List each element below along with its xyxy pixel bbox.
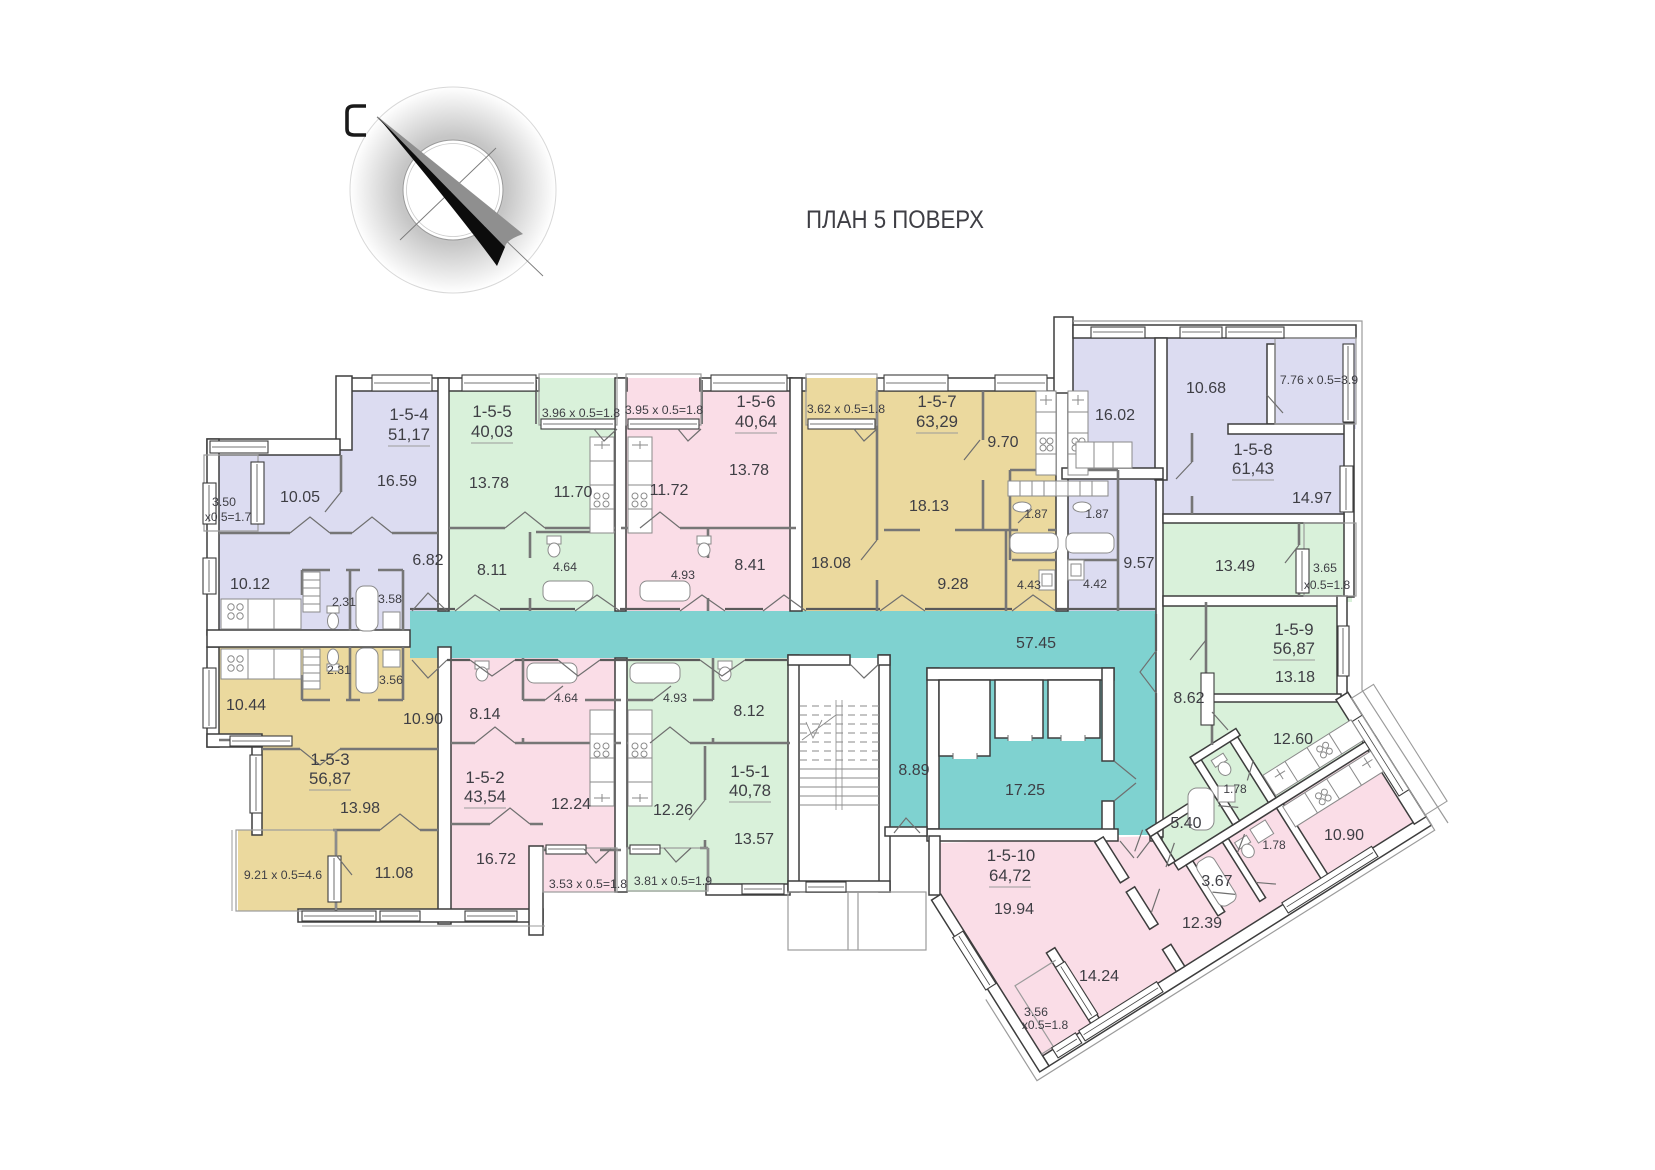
svg-text:63,29: 63,29: [916, 412, 958, 431]
svg-text:3.53 х 0.5=1.8: 3.53 х 0.5=1.8: [549, 877, 627, 891]
svg-text:1.78: 1.78: [1223, 782, 1247, 796]
svg-text:13.57: 13.57: [734, 831, 774, 848]
svg-text:8.11: 8.11: [477, 562, 507, 579]
svg-text:3.65: 3.65: [1313, 561, 1337, 575]
svg-text:9.70: 9.70: [987, 434, 1018, 451]
svg-text:6.82: 6.82: [412, 552, 443, 569]
svg-text:9.21 х 0.5=4.6: 9.21 х 0.5=4.6: [244, 868, 322, 882]
svg-text:11.72: 11.72: [650, 482, 689, 499]
svg-text:8.12: 8.12: [733, 703, 764, 720]
svg-text:1-5-4: 1-5-4: [389, 405, 428, 424]
svg-text:40,78: 40,78: [729, 781, 771, 800]
svg-text:13.98: 13.98: [340, 800, 380, 817]
svg-text:64,72: 64,72: [989, 866, 1031, 885]
svg-text:14.97: 14.97: [1292, 490, 1332, 507]
svg-text:8.89: 8.89: [898, 762, 929, 779]
svg-text:9.28: 9.28: [937, 576, 968, 593]
svg-text:17.25: 17.25: [1005, 782, 1045, 799]
svg-text:10.44: 10.44: [226, 697, 266, 714]
svg-text:3.56: 3.56: [379, 673, 403, 687]
svg-text:2.31: 2.31: [332, 595, 356, 609]
svg-text:16.72: 16.72: [476, 851, 516, 868]
svg-text:8.14: 8.14: [469, 706, 500, 723]
svg-text:4.64: 4.64: [554, 691, 578, 705]
svg-text:1.78: 1.78: [1262, 838, 1286, 852]
svg-text:10.12: 10.12: [230, 576, 270, 593]
svg-text:13.78: 13.78: [469, 475, 509, 492]
svg-text:1.87: 1.87: [1024, 507, 1048, 521]
svg-text:16.59: 16.59: [377, 473, 417, 490]
svg-text:4.93: 4.93: [671, 568, 695, 582]
svg-text:18.13: 18.13: [909, 498, 949, 515]
svg-text:8.62: 8.62: [1173, 690, 1204, 707]
svg-text:11.70: 11.70: [554, 484, 593, 501]
svg-text:ПЛАН 5 ПОВЕРХ: ПЛАН 5 ПОВЕРХ: [806, 206, 984, 234]
svg-text:3.67: 3.67: [1201, 873, 1232, 890]
svg-text:1-5-3: 1-5-3: [310, 750, 349, 769]
svg-text:19.94: 19.94: [994, 901, 1034, 918]
svg-text:3.95 х 0.5=1.8: 3.95 х 0.5=1.8: [625, 403, 703, 417]
svg-text:12.39: 12.39: [1182, 915, 1222, 932]
svg-text:3.96 х 0.5=1.8: 3.96 х 0.5=1.8: [542, 406, 620, 420]
svg-text:57.45: 57.45: [1016, 635, 1056, 652]
svg-text:8.41: 8.41: [734, 557, 765, 574]
svg-text:х0.5=1.8: х0.5=1.8: [1304, 578, 1351, 592]
svg-text:11.08: 11.08: [375, 865, 414, 882]
svg-text:10.05: 10.05: [280, 489, 320, 506]
svg-text:1-5-1: 1-5-1: [730, 762, 769, 781]
svg-text:4.42: 4.42: [1083, 577, 1107, 591]
svg-text:3.58: 3.58: [378, 592, 402, 606]
svg-text:12.60: 12.60: [1273, 731, 1313, 748]
svg-text:1.87: 1.87: [1085, 507, 1109, 521]
svg-text:16.02: 16.02: [1095, 407, 1135, 424]
svg-text:1-5-9: 1-5-9: [1274, 620, 1313, 639]
svg-text:51,17: 51,17: [388, 425, 430, 444]
svg-text:х0.5=1.7: х0.5=1.7: [205, 510, 252, 524]
svg-text:14.24: 14.24: [1079, 968, 1119, 985]
svg-text:12.24: 12.24: [551, 796, 591, 813]
svg-text:18.08: 18.08: [811, 555, 851, 572]
svg-text:13.49: 13.49: [1215, 558, 1255, 575]
svg-text:13.78: 13.78: [729, 462, 769, 479]
svg-text:3.81 х 0.5=1.9: 3.81 х 0.5=1.9: [634, 874, 712, 888]
svg-text:4.64: 4.64: [553, 560, 577, 574]
svg-text:3.56: 3.56: [1024, 1005, 1048, 1019]
svg-text:1-5-5: 1-5-5: [472, 402, 511, 421]
svg-text:3.50: 3.50: [212, 495, 236, 509]
svg-text:9.57: 9.57: [1123, 555, 1154, 572]
svg-text:3.62 х 0.5=1.8: 3.62 х 0.5=1.8: [807, 402, 885, 416]
svg-text:1-5-6: 1-5-6: [736, 392, 775, 411]
svg-text:40,64: 40,64: [735, 412, 777, 431]
svg-text:1-5-2: 1-5-2: [465, 768, 504, 787]
svg-text:43,54: 43,54: [464, 787, 506, 806]
svg-text:61,43: 61,43: [1232, 459, 1274, 478]
svg-text:10.90: 10.90: [1324, 827, 1364, 844]
svg-text:1-5-10: 1-5-10: [987, 846, 1036, 865]
svg-text:х0.5=1.8: х0.5=1.8: [1022, 1018, 1069, 1032]
svg-text:10.90: 10.90: [403, 711, 443, 728]
svg-text:4.93: 4.93: [663, 691, 687, 705]
svg-text:12.26: 12.26: [653, 802, 693, 819]
svg-text:7.76 х 0.5=3.9: 7.76 х 0.5=3.9: [1280, 373, 1358, 387]
svg-text:40,03: 40,03: [471, 422, 513, 441]
svg-text:2.31: 2.31: [327, 663, 351, 677]
svg-text:1-5-8: 1-5-8: [1233, 440, 1272, 459]
svg-text:56,87: 56,87: [1273, 639, 1315, 658]
svg-text:10.68: 10.68: [1186, 380, 1226, 397]
svg-text:1-5-7: 1-5-7: [917, 392, 956, 411]
svg-text:56,87: 56,87: [309, 769, 351, 788]
svg-text:13.18: 13.18: [1275, 669, 1315, 686]
svg-text:4.43: 4.43: [1017, 578, 1041, 592]
svg-text:5.40: 5.40: [1170, 815, 1201, 832]
